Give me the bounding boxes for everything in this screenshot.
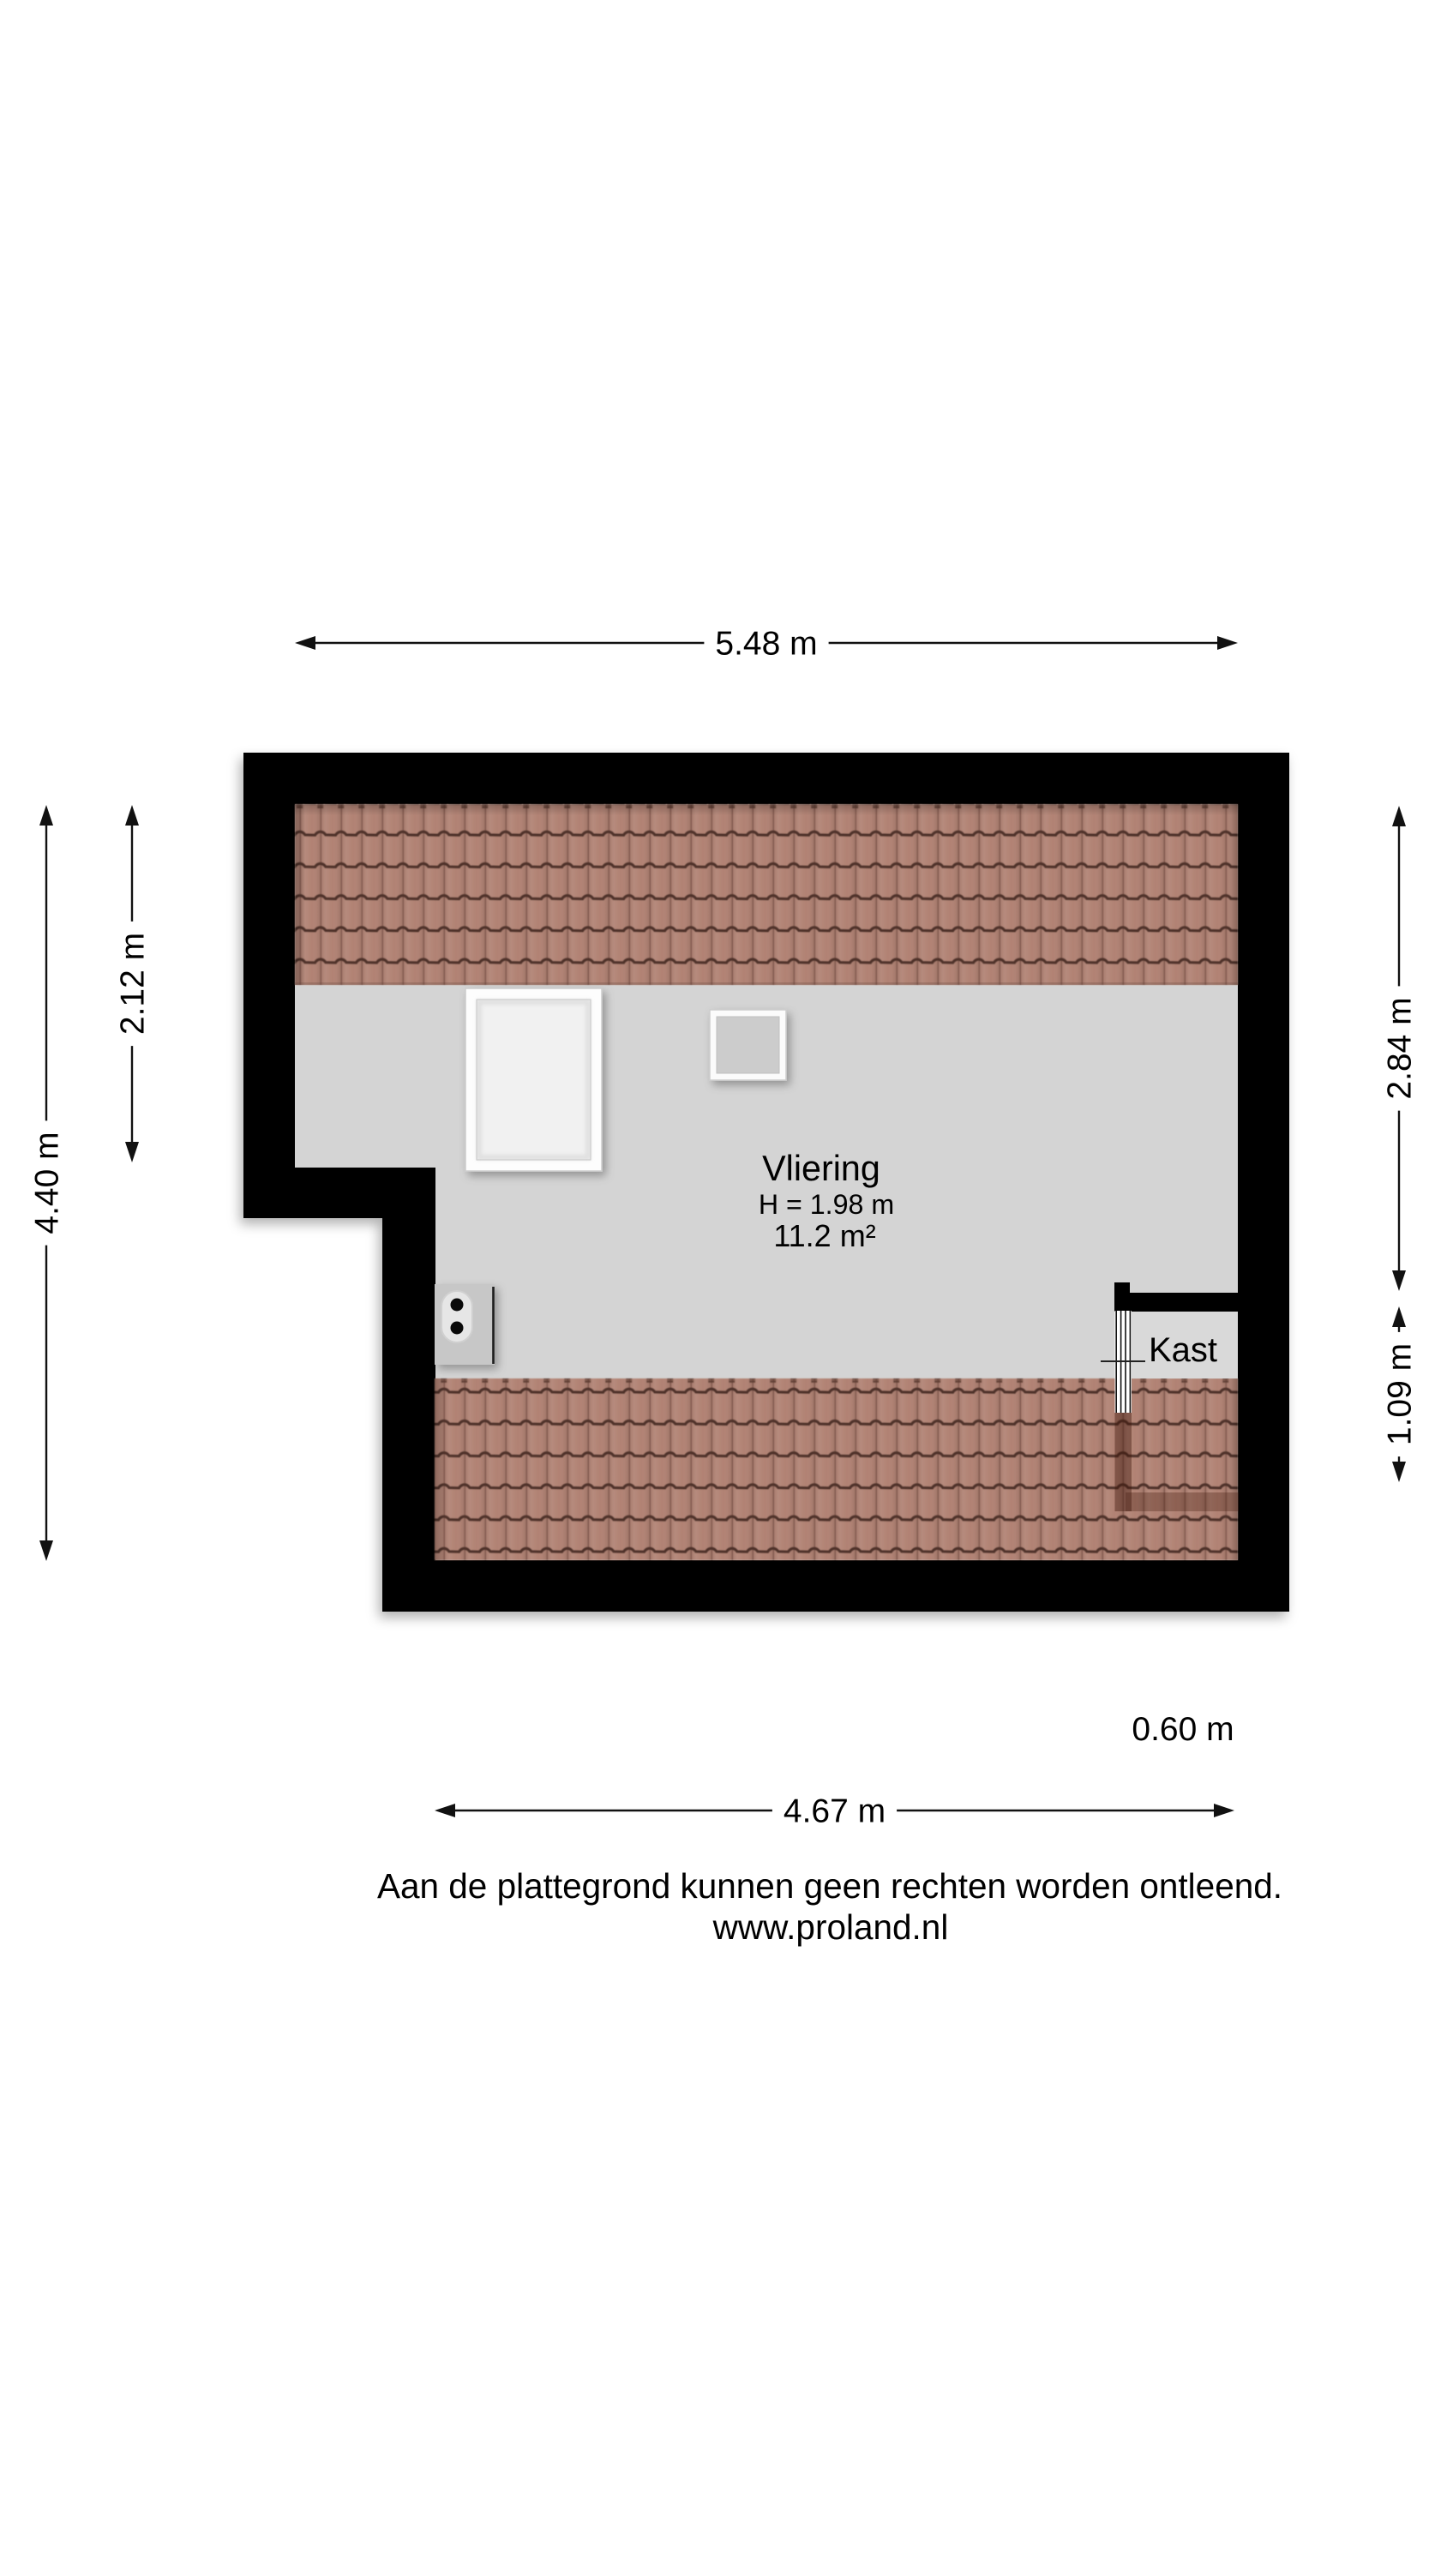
- svg-text:Vliering: Vliering: [762, 1149, 880, 1188]
- svg-text:4.67 m: 4.67 m: [784, 1793, 886, 1830]
- svg-text:0.60 m: 0.60 m: [1132, 1711, 1234, 1748]
- svg-text:2.84 m: 2.84 m: [1382, 997, 1419, 1099]
- svg-text:www.proland.nl: www.proland.nl: [712, 1907, 949, 1947]
- svg-text:H = 1.98 m: H = 1.98 m: [759, 1189, 894, 1220]
- svg-text:5.48 m: 5.48 m: [715, 626, 817, 663]
- svg-text:11.2 m²: 11.2 m²: [773, 1218, 875, 1253]
- svg-text:1.09 m: 1.09 m: [1382, 1343, 1419, 1445]
- svg-text:2.12 m: 2.12 m: [115, 933, 152, 1035]
- svg-text:Aan de plattegrond kunnen geen: Aan de plattegrond kunnen geen rechten w…: [377, 1866, 1282, 1906]
- svg-text:4.40 m: 4.40 m: [29, 1132, 66, 1234]
- svg-text:Kast: Kast: [1149, 1331, 1217, 1369]
